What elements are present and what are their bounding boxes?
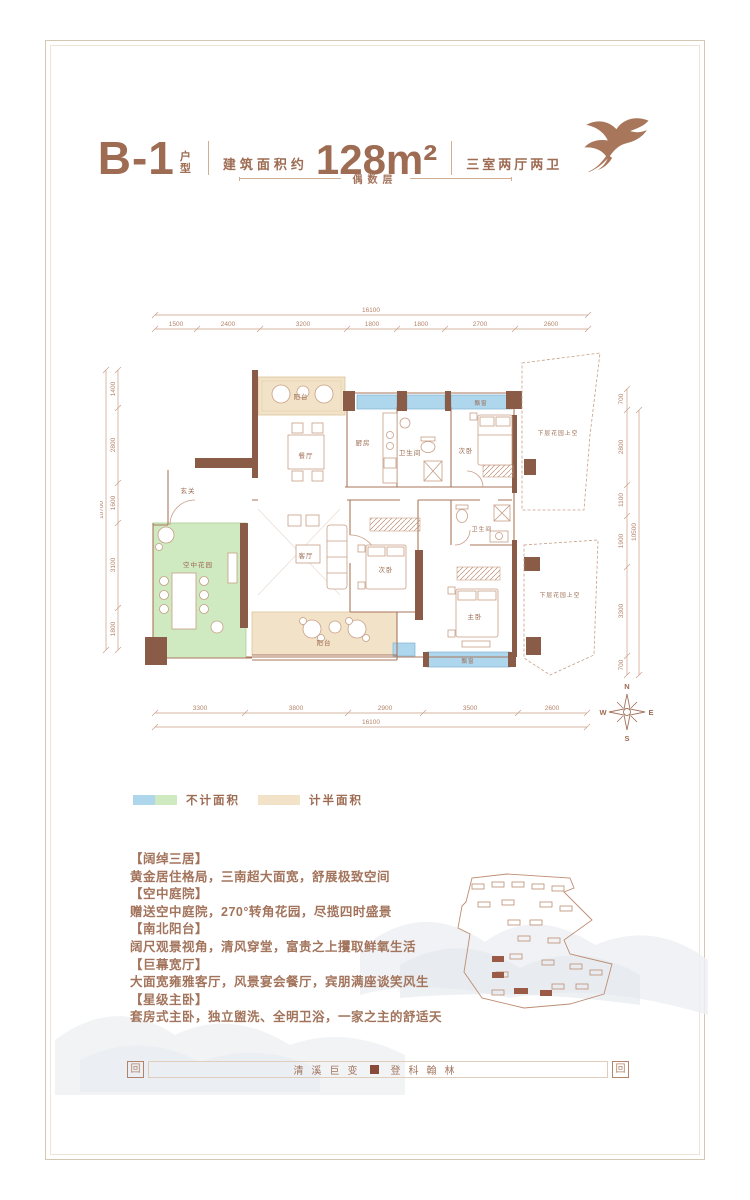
room-label: 阳台 xyxy=(294,392,309,401)
dim: 700 xyxy=(618,393,625,404)
dimension-labels: 16100 1500 2400 3200 1800 1800 2700 2600… xyxy=(100,307,638,726)
seal-icon-center xyxy=(370,1065,379,1074)
room-label: 飘窗 xyxy=(461,657,474,665)
room-label: 下层花园上空 xyxy=(538,429,579,437)
void-outlines xyxy=(522,353,600,675)
compass-s: S xyxy=(624,734,629,743)
room-label: 玄关 xyxy=(181,486,196,495)
room-label: 次卧 xyxy=(379,565,394,574)
feature-desc: 大面宽雍雅客厅，风景宴会餐厅，宾朋满座谈笑风生 xyxy=(130,974,475,992)
dim: 700 xyxy=(618,659,625,670)
legend: 不计面积 计半面积 xyxy=(133,792,363,808)
feature-title: 【阔绰三居】 xyxy=(130,851,475,869)
room-label: 飘窗 xyxy=(474,399,487,407)
dim: 1500 xyxy=(169,321,184,328)
feature-desc: 黄金居住格局，三南超大面宽，舒展极致空间 xyxy=(130,869,475,887)
slogan-left: 清溪巨变 xyxy=(294,1062,366,1077)
room-label: 客厅 xyxy=(299,551,314,560)
dim: 3200 xyxy=(296,321,311,328)
dim: 2600 xyxy=(544,321,559,328)
feature-title: 【星级主卧】 xyxy=(130,992,475,1010)
dim: 1900 xyxy=(618,533,625,548)
floor-plan: 16100 1500 2400 3200 1800 1800 2700 2600… xyxy=(100,295,660,765)
dim-total-right: 10500 xyxy=(631,523,638,541)
dim: 2900 xyxy=(378,705,393,712)
dim: 1400 xyxy=(110,381,117,396)
dim: 3500 xyxy=(463,705,478,712)
dim: 3300 xyxy=(193,705,208,712)
legend-label: 不计面积 xyxy=(186,792,240,808)
legend-swatch-green xyxy=(155,795,177,805)
feature-desc: 阔尺观景视角，清风穿堂，富贵之上攫取鲜氧生活 xyxy=(130,939,475,957)
seal-icon-left: 回 xyxy=(127,1061,144,1078)
feature-desc: 赠送空中庭院，270°转角花园，尽揽四时盛景 xyxy=(130,904,475,922)
room-label: 餐厅 xyxy=(299,451,314,460)
decorative-line xyxy=(239,178,341,179)
feature-title: 【南北阳台】 xyxy=(130,921,475,939)
dim-total-top: 16100 xyxy=(362,307,380,314)
dim: 3300 xyxy=(618,603,625,618)
divider xyxy=(451,141,452,175)
dim: 1800 xyxy=(110,621,117,636)
dim: 2800 xyxy=(110,437,117,452)
room-label: 厨房 xyxy=(356,438,371,447)
compass-e: E xyxy=(648,708,653,717)
header: B-1 户型 建筑面积约 128m² 三室两厅两卫 xyxy=(0,116,750,178)
dim-total-bottom: 16100 xyxy=(362,719,380,726)
dim: 3800 xyxy=(289,705,304,712)
room-label: 阳台 xyxy=(317,638,332,647)
feature-list: 【阔绰三居】 黄金居住格局，三南超大面宽，舒展极致空间 【空中庭院】 赠送空中庭… xyxy=(130,851,475,1027)
dim: 1600 xyxy=(110,495,117,510)
compass-n: N xyxy=(624,682,629,691)
feature-desc: 套房式主卧，独立盥洗、全明卫浴，一家之主的舒适天 xyxy=(130,1009,475,1027)
dim: 1800 xyxy=(365,321,380,328)
dim: 2600 xyxy=(545,705,560,712)
room-label: 空中花园 xyxy=(183,560,213,569)
seal-icon-right: 回 xyxy=(612,1061,629,1078)
floor-note-text: 偶数层 xyxy=(353,171,398,186)
floorplan-flyer: B-1 户型 建筑面积约 128m² 三室两厅两卫 偶数层 xyxy=(0,0,750,1200)
decorative-line xyxy=(410,178,512,179)
legend-swatch-blue xyxy=(133,795,155,805)
feature-title: 【巨幕宽厅】 xyxy=(130,957,475,975)
footer: 回 清溪巨变 登科翰林 回 xyxy=(127,1061,629,1078)
dim: 2800 xyxy=(618,439,625,454)
dim-total-left: 10700 xyxy=(100,501,105,519)
room-label: 卫生间 xyxy=(472,525,492,533)
dim: 1800 xyxy=(414,321,429,328)
compass-w: W xyxy=(599,708,607,717)
dim: 1100 xyxy=(618,493,625,507)
swallow-icon xyxy=(574,116,652,172)
dim: 2400 xyxy=(221,321,236,328)
legend-swatch-tan xyxy=(258,795,300,805)
room-label: 卫生间 xyxy=(399,448,422,457)
room-label: 主卧 xyxy=(468,612,483,621)
feature-title: 【空中庭院】 xyxy=(130,886,475,904)
dim: 2700 xyxy=(473,321,488,328)
slogan-band: 清溪巨变 登科翰林 xyxy=(148,1061,608,1078)
legend-label: 计半面积 xyxy=(309,792,363,808)
site-plan-map xyxy=(452,872,627,1047)
slogan-right: 登科翰林 xyxy=(391,1062,463,1077)
dim: 3100 xyxy=(110,557,117,572)
compass-icon: N E S W xyxy=(599,682,653,743)
divider xyxy=(208,141,209,175)
room-label: 下层花园上空 xyxy=(540,591,581,599)
room-label: 次卧 xyxy=(459,446,474,455)
floor-note-row: 偶数层 xyxy=(0,171,750,186)
